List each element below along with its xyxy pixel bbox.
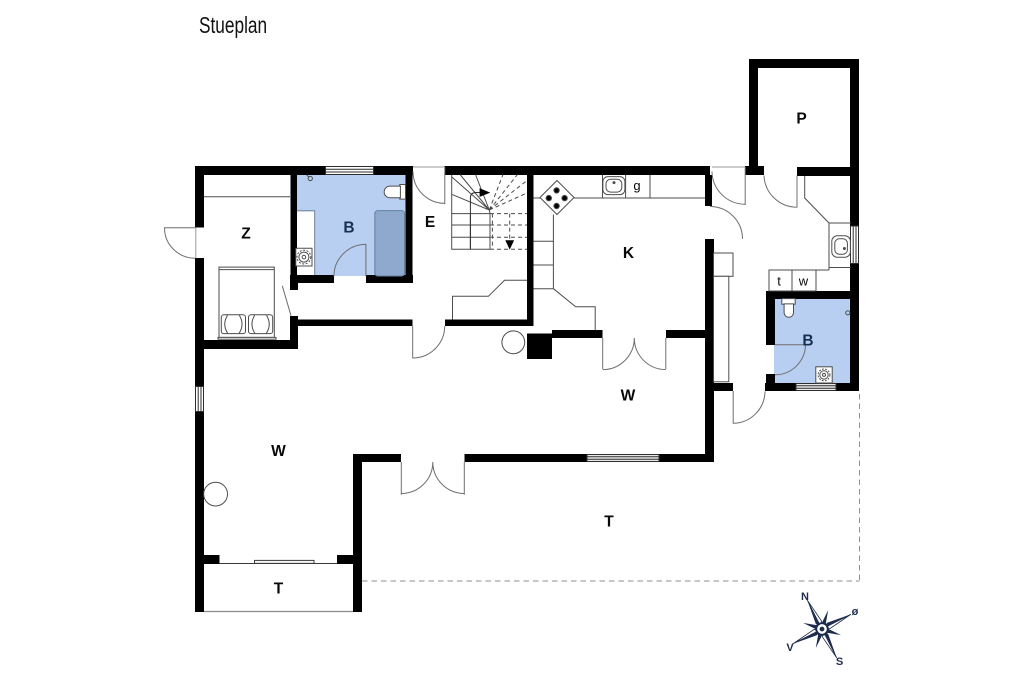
svg-text:t: t	[777, 274, 781, 289]
svg-text:T: T	[274, 580, 284, 597]
svg-text:Z: Z	[241, 226, 251, 243]
svg-text:W: W	[271, 443, 286, 460]
svg-text:V: V	[786, 642, 794, 654]
svg-text:W: W	[621, 388, 636, 405]
svg-text:ø: ø	[852, 606, 859, 618]
svg-text:B: B	[343, 219, 354, 236]
svg-text:K: K	[623, 245, 635, 262]
svg-text:S: S	[836, 656, 843, 668]
svg-text:T: T	[604, 514, 614, 531]
svg-text:B: B	[802, 333, 813, 350]
svg-text:N: N	[801, 591, 809, 603]
svg-text:E: E	[425, 214, 435, 231]
svg-text:g: g	[633, 178, 640, 193]
svg-text:P: P	[796, 111, 806, 128]
svg-text:w: w	[798, 274, 809, 289]
